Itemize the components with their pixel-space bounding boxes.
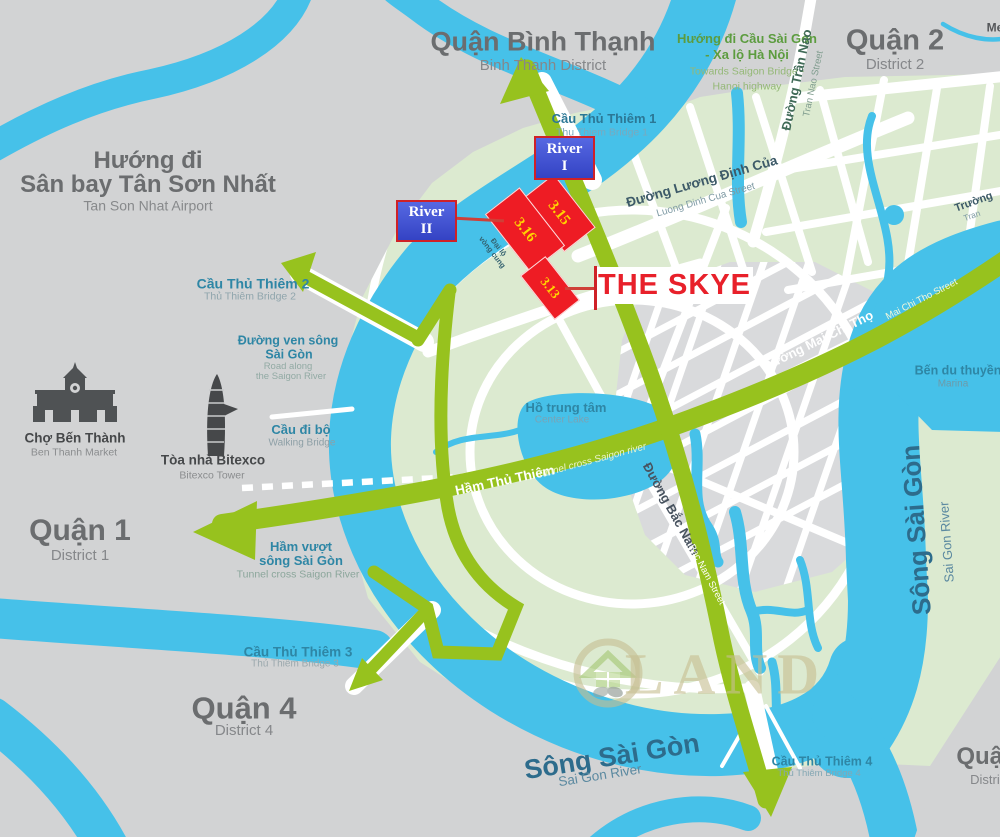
project-name-label: THE SKYE bbox=[596, 267, 753, 304]
road-ven-song-line1: Đường ven sông bbox=[238, 334, 339, 348]
bitexco-sublabel: Bitexco Tower bbox=[179, 470, 244, 481]
skye-connector-line bbox=[565, 287, 597, 290]
district-2-label: Quận 2 bbox=[846, 25, 944, 56]
bridge-tt4-label: Cầu Thủ Thiêm 4 bbox=[772, 755, 873, 769]
district-edge-label: Quận bbox=[956, 744, 1000, 770]
river-1-line2: I bbox=[562, 158, 568, 175]
marina-sublabel: Marina bbox=[938, 380, 969, 391]
district-4-label: Quận 4 bbox=[191, 691, 296, 724]
ben-thanh-sublabel: Ben Thanh Market bbox=[31, 447, 117, 458]
ben-thanh-label: Chợ Bến Thành bbox=[24, 432, 125, 447]
ham-vuot-line2: sông Sài Gòn bbox=[259, 554, 343, 568]
district-binh-thanh-label: Quận Bình Thạnh bbox=[431, 27, 656, 56]
bridge-tt2-sublabel: Thủ Thiêm Bridge 2 bbox=[204, 291, 296, 302]
direction-saigon-bridge-en1: Towards Saigon Bridge - bbox=[690, 66, 804, 77]
bridge-tt1-label: Cầu Thủ Thiêm 1 bbox=[552, 112, 657, 126]
direction-saigon-bridge-line2: - Xa lộ Hà Nội bbox=[705, 48, 789, 62]
ham-vuot-line1: Hầm vượt bbox=[270, 540, 332, 554]
river-2-marker: River II bbox=[396, 200, 457, 242]
district-binh-thanh-sublabel: Binh Thanh District bbox=[480, 58, 606, 74]
district-1-label: Quận 1 bbox=[29, 515, 131, 547]
district-4-sublabel: District 4 bbox=[215, 723, 273, 739]
me-stream-label: Me bbox=[987, 22, 1000, 35]
bridge-tt1-sublabel: Thu Thiem Bridge 1 bbox=[556, 127, 648, 138]
district-1-sublabel: District 1 bbox=[51, 548, 109, 564]
bridge-walking-label: Cầu đi bộ bbox=[271, 423, 330, 437]
thu-thiem-location-map: LAND Quận Bình Thạnh Binh Thanh District… bbox=[0, 0, 1000, 837]
road-ven-song-line2: Sài Gòn bbox=[265, 348, 312, 362]
river-2-line1: River bbox=[409, 204, 445, 221]
center-lake-sublabel: Center Lake bbox=[535, 416, 589, 427]
oland-watermark-text: LAND bbox=[625, 641, 829, 708]
map-canvas bbox=[0, 0, 1000, 837]
district-2-sublabel: District 2 bbox=[866, 57, 924, 73]
direction-airport-sublabel: Tan Son Nhat Airport bbox=[83, 198, 212, 213]
district-edge-sublabel: District bbox=[970, 773, 1000, 787]
direction-airport-line2: Sân bay Tân Sơn Nhất bbox=[20, 172, 276, 198]
road-ven-song-en2: the Saigon River bbox=[256, 372, 326, 382]
center-lake-label: Hồ trung tâm bbox=[526, 401, 607, 415]
skye-box-left-bar bbox=[594, 266, 597, 310]
bridge-tt3-sublabel: Thủ Thiêm Bridge 3 bbox=[251, 660, 339, 671]
ham-vuot-sublabel: Tunnel cross Saigon River bbox=[237, 569, 360, 580]
bridge-tt4-sublabel: Thủ Thiêm Bridge 4 bbox=[777, 769, 860, 779]
river-2-line2: II bbox=[421, 221, 433, 238]
river-1-marker: River I bbox=[534, 136, 595, 180]
bitexco-label: Tòa nhà Bitexco bbox=[161, 454, 265, 469]
bridge-tt2-label: Cầu Thủ Thiêm 2 bbox=[197, 276, 310, 291]
marina-label: Bến du thuyền bbox=[915, 364, 1000, 378]
bridge-walking-sublabel: Walking Bridge bbox=[269, 439, 336, 450]
direction-saigon-bridge-en2: Hanoi highway bbox=[713, 81, 782, 92]
river-1-line1: River bbox=[547, 141, 583, 158]
